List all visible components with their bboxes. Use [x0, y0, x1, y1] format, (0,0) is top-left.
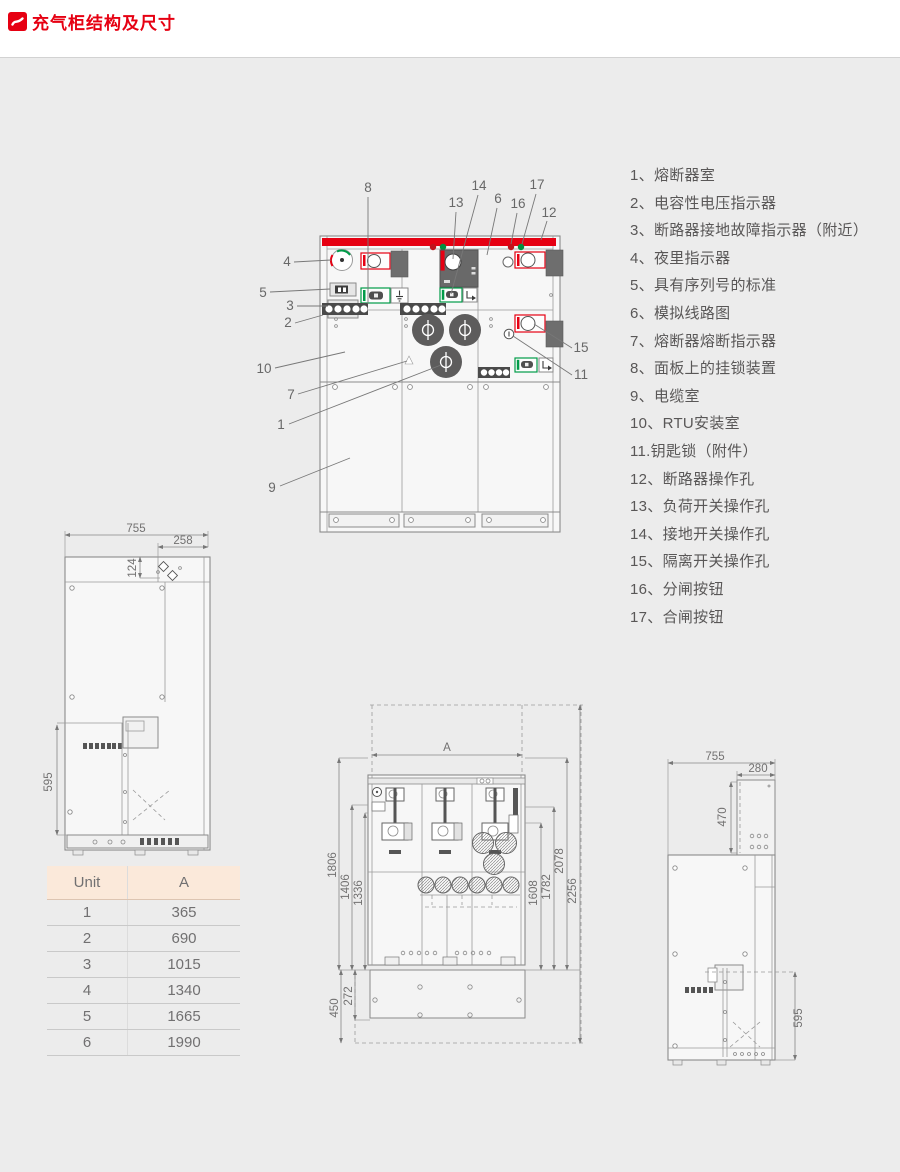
key-lock	[504, 329, 514, 339]
legend-item: 8、面板上的挂锁装置	[630, 355, 895, 383]
cell-a: 365	[128, 900, 241, 926]
table-row: 1365	[47, 900, 240, 926]
legend-list: 1、熔断器室 2、电容性电压指示器 3、断路器接地故障指示器（附近） 4、夜里指…	[630, 162, 895, 631]
body	[57, 557, 210, 850]
top-box	[737, 780, 775, 855]
legend-item: 5、具有序列号的标准	[630, 272, 895, 300]
callout-2: 2	[284, 315, 292, 330]
side-view-left-drawing: 755 258 124 595	[40, 525, 255, 860]
dimension-table: Unit A 1365 2690 31015 41340 51665 61990	[47, 866, 240, 1056]
dim-595: 595	[43, 772, 55, 791]
col-header-unit: Unit	[47, 866, 128, 900]
cell-unit: 4	[47, 978, 128, 1004]
legend-item: 10、RTU安装室	[630, 410, 895, 438]
dim-2256: 2256	[567, 878, 579, 904]
side-view-right-drawing: 755 280 470 595	[655, 750, 815, 1070]
callout-14: 14	[471, 178, 487, 193]
legend-item: 2、电容性电压指示器	[630, 190, 895, 218]
cell-unit: 5	[47, 1004, 128, 1030]
legend-item: 11.钥匙锁（附件）	[630, 438, 895, 466]
callout-8: 8	[364, 180, 372, 195]
earthing-module-right	[515, 358, 553, 372]
legend-item: 7、熔断器熔断指示器	[630, 328, 895, 356]
callout-11: 11	[574, 367, 588, 382]
cell-a: 1990	[128, 1030, 241, 1056]
fuse-circle	[412, 314, 444, 346]
callout-1: 1	[277, 417, 285, 432]
table-header-row: Unit A	[47, 866, 240, 900]
callout-13: 13	[448, 195, 463, 210]
dim-1608: 1608	[528, 880, 540, 906]
dim-450: 450	[329, 998, 341, 1017]
legend-item: 1、熔断器室	[630, 162, 895, 190]
viewing-window	[503, 257, 513, 267]
table-row: 41340	[47, 978, 240, 1004]
dim-755: 755	[705, 751, 724, 763]
callout-7: 7	[287, 387, 295, 402]
legend-item: 16、分闸按钮	[630, 576, 895, 604]
cell-a: 1340	[128, 978, 241, 1004]
table-row: 31015	[47, 952, 240, 978]
callout-15: 15	[573, 340, 588, 355]
callout-16: 16	[510, 196, 525, 211]
cell-a: 1665	[128, 1004, 241, 1030]
dim-755: 755	[126, 523, 145, 535]
dim-124: 124	[127, 558, 139, 578]
body	[668, 855, 775, 1060]
legend-item: 3、断路器接地故障指示器（附近）	[630, 217, 895, 245]
dim-595: 595	[793, 1008, 805, 1027]
table-row: 2690	[47, 926, 240, 952]
page-title: 充气柜结构及尺寸	[32, 9, 176, 34]
callout-4: 4	[283, 254, 291, 269]
callout-17: 17	[529, 177, 544, 192]
dim-2078: 2078	[554, 848, 566, 874]
cell-unit: 2	[47, 926, 128, 952]
page-header: 充气柜结构及尺寸	[0, 0, 900, 58]
legend-item: 4、夜里指示器	[630, 245, 895, 273]
cell-unit: 1	[47, 900, 128, 926]
nameplate-display	[330, 283, 356, 296]
section-marker-icon	[8, 12, 27, 31]
fuse-circle	[449, 314, 481, 346]
cell-unit: 3	[47, 952, 128, 978]
dim-1806: 1806	[327, 852, 339, 878]
base	[67, 835, 208, 855]
legend-item: 9、电缆室	[630, 383, 895, 411]
page: 充气柜结构及尺寸	[0, 0, 900, 1172]
legend-item: 12、断路器操作孔	[630, 466, 895, 494]
capacitive-indicator-strip-middle	[400, 303, 446, 315]
dim-a: A	[443, 742, 451, 754]
voltage-presence-indicator	[331, 250, 353, 271]
capacitive-indicator-strip-left	[322, 303, 368, 315]
capacitive-indicator-strip-right	[478, 367, 510, 378]
fuse-circle	[430, 346, 462, 378]
dim-1782: 1782	[541, 874, 553, 900]
callout-12: 12	[541, 205, 556, 220]
dim-470: 470	[717, 807, 729, 826]
table-row: 61990	[47, 1030, 240, 1056]
cell-unit: 6	[47, 1030, 128, 1056]
legend-item: 14、接地开关操作孔	[630, 521, 895, 549]
callout-5: 5	[259, 285, 267, 300]
cell-a: 690	[128, 926, 241, 952]
table-row: 51665	[47, 1004, 240, 1030]
callout-6: 6	[494, 191, 502, 206]
base-pedestal	[370, 970, 525, 1018]
cell-a: 1015	[128, 952, 241, 978]
callout-9: 9	[268, 480, 276, 495]
legend-item: 6、模拟线路图	[630, 300, 895, 328]
dim-258: 258	[173, 535, 192, 547]
dim-272: 272	[343, 986, 355, 1005]
load-switch-panel	[440, 250, 478, 287]
legend-item: 17、合闸按钮	[630, 604, 895, 632]
callout-3: 3	[286, 298, 294, 313]
legend-item: 13、负荷开关操作孔	[630, 493, 895, 521]
front-view-drawing: 4 5 3 2 10 7 1 9 8 13 14 6 16 17 12 15 1…	[250, 175, 595, 540]
callout-10: 10	[256, 361, 271, 376]
front-dimension-drawing: A 1806 1406 1336 450 272 1608 1782 2078 …	[325, 695, 595, 1060]
earthing-module-middle	[440, 288, 477, 302]
dim-1336: 1336	[353, 880, 365, 906]
dim-280: 280	[748, 763, 767, 775]
legend-item: 15、隔离开关操作孔	[630, 548, 895, 576]
col-header-a: A	[128, 866, 241, 900]
dim-1406: 1406	[340, 874, 352, 900]
